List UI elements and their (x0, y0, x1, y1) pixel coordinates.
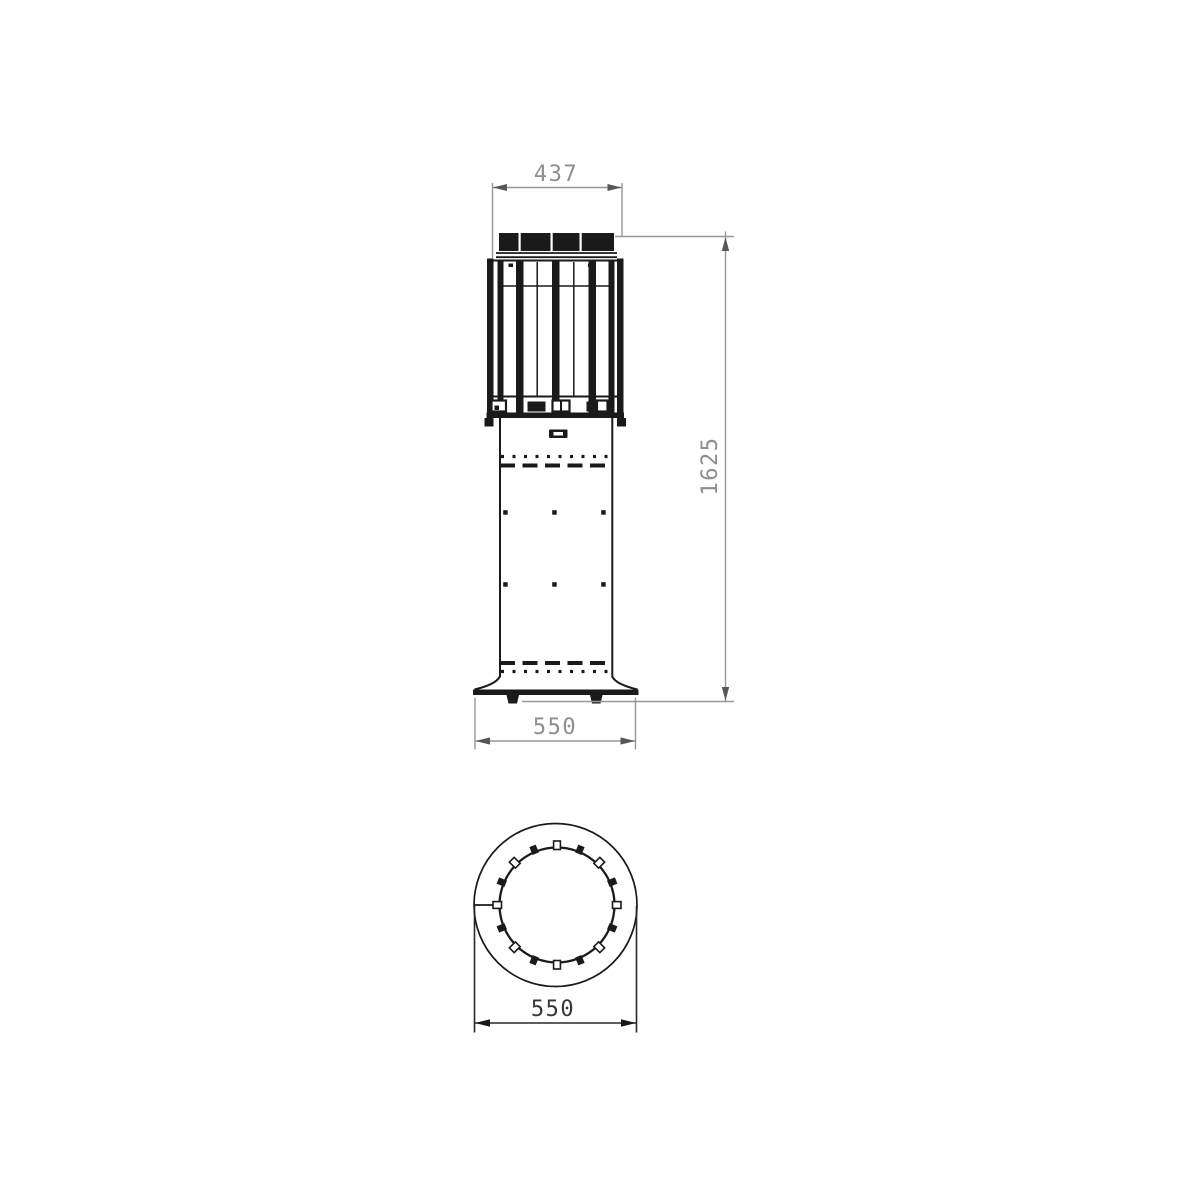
column-shaft (500, 418, 612, 678)
cap-divider (551, 233, 553, 251)
cap-divider (519, 233, 521, 251)
arrowhead (621, 1019, 636, 1026)
cap-divider (580, 233, 582, 251)
dimension-label-plan-width: 550 (531, 997, 575, 1022)
front-view: 437 (473, 162, 734, 750)
technical-drawing: 437 (0, 0, 1200, 1200)
vent-box (587, 402, 595, 412)
base-flare (475, 677, 500, 690)
arrowhead (493, 184, 507, 191)
dim-base-width: 550 (475, 698, 636, 750)
grille-slats (487, 259, 624, 418)
base-plate (473, 690, 639, 696)
lantern-bottom-band (485, 397, 627, 427)
arrowhead (722, 237, 729, 251)
rivet-dots-row (503, 510, 606, 515)
drawing-canvas: 437 (0, 0, 1200, 1200)
rivet-dots-row (503, 582, 606, 587)
lantern-foot (485, 418, 494, 427)
base-foot (507, 695, 520, 704)
slat-pin (509, 264, 514, 268)
arrowhead (475, 737, 490, 744)
plan-view: 550 (474, 824, 638, 1033)
arrowhead (475, 1019, 490, 1026)
lantern-base-line (487, 413, 625, 419)
cap-band (499, 233, 614, 251)
lantern-head (485, 233, 627, 427)
bolt-tabs (493, 841, 621, 969)
arrowhead (608, 184, 622, 191)
base (473, 677, 639, 704)
arrowhead (722, 687, 729, 701)
lantern-foot (617, 418, 626, 427)
slat-pin (588, 264, 593, 268)
dimension-label-base-width: 550 (533, 715, 577, 740)
arrowhead (621, 737, 636, 744)
dimension-label-top-width: 437 (534, 162, 578, 187)
base-foot (590, 695, 603, 704)
dimension-label-overall-height: 1625 (698, 437, 723, 496)
vent-box (528, 402, 546, 412)
vent-box (597, 401, 608, 412)
base-flare (613, 677, 638, 690)
